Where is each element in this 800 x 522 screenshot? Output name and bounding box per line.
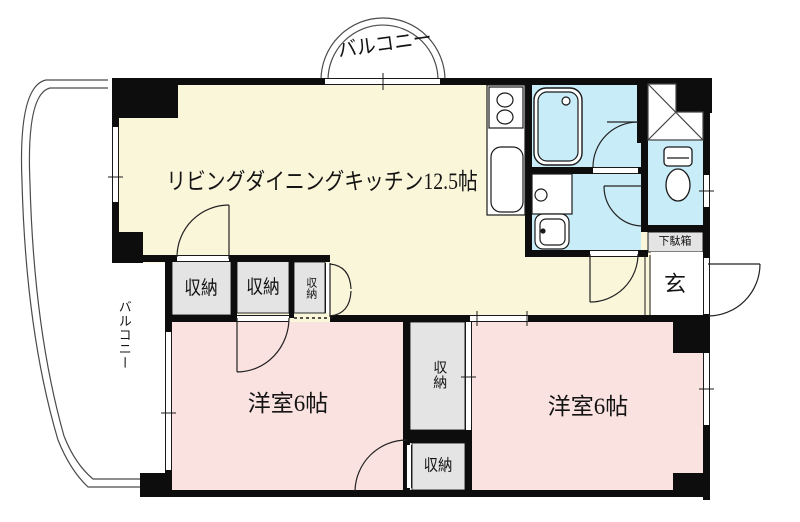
vanity-faucet <box>540 228 545 233</box>
bathtub-inner <box>538 92 578 161</box>
balcony-left-label: バルコニー <box>117 300 131 370</box>
closet-bedroom-left-label: 収納 <box>246 278 279 298</box>
closet-hall-label: 収納 <box>304 277 315 299</box>
closet-lower-label: 収納 <box>424 459 453 476</box>
stove-burner <box>497 110 513 124</box>
kitchen-fixtures <box>487 85 525 215</box>
toilet-bowl <box>666 169 690 201</box>
bedroom-right-label: 洋室6帖 <box>548 395 629 419</box>
kitchen-sink <box>491 147 523 212</box>
stove-burner <box>497 93 513 107</box>
shoe-cabinet-label: 下駄箱 <box>659 236 692 247</box>
toilet-tank <box>664 147 692 166</box>
bath-fixtures <box>534 88 582 165</box>
ldk-label: リビングダイニングキッチン12.5帖 <box>166 170 478 194</box>
door-entrance <box>708 264 760 316</box>
closet-middle-label: 収納 <box>431 360 446 390</box>
floorplan-canvas: リビングダイニングキッチン12.5帖 洋室6帖 洋室6帖 バルコニー バルコニー… <box>0 0 800 522</box>
closet-living-label: 収納 <box>184 279 217 299</box>
bathtub-drain <box>562 97 570 105</box>
floorplan-drawing <box>0 0 800 522</box>
washroom-fixtures <box>532 174 572 249</box>
entrance-label: 玄 <box>664 274 686 297</box>
washing-machine-tap <box>535 189 547 201</box>
bedroom-left-label: 洋室6帖 <box>248 392 329 416</box>
